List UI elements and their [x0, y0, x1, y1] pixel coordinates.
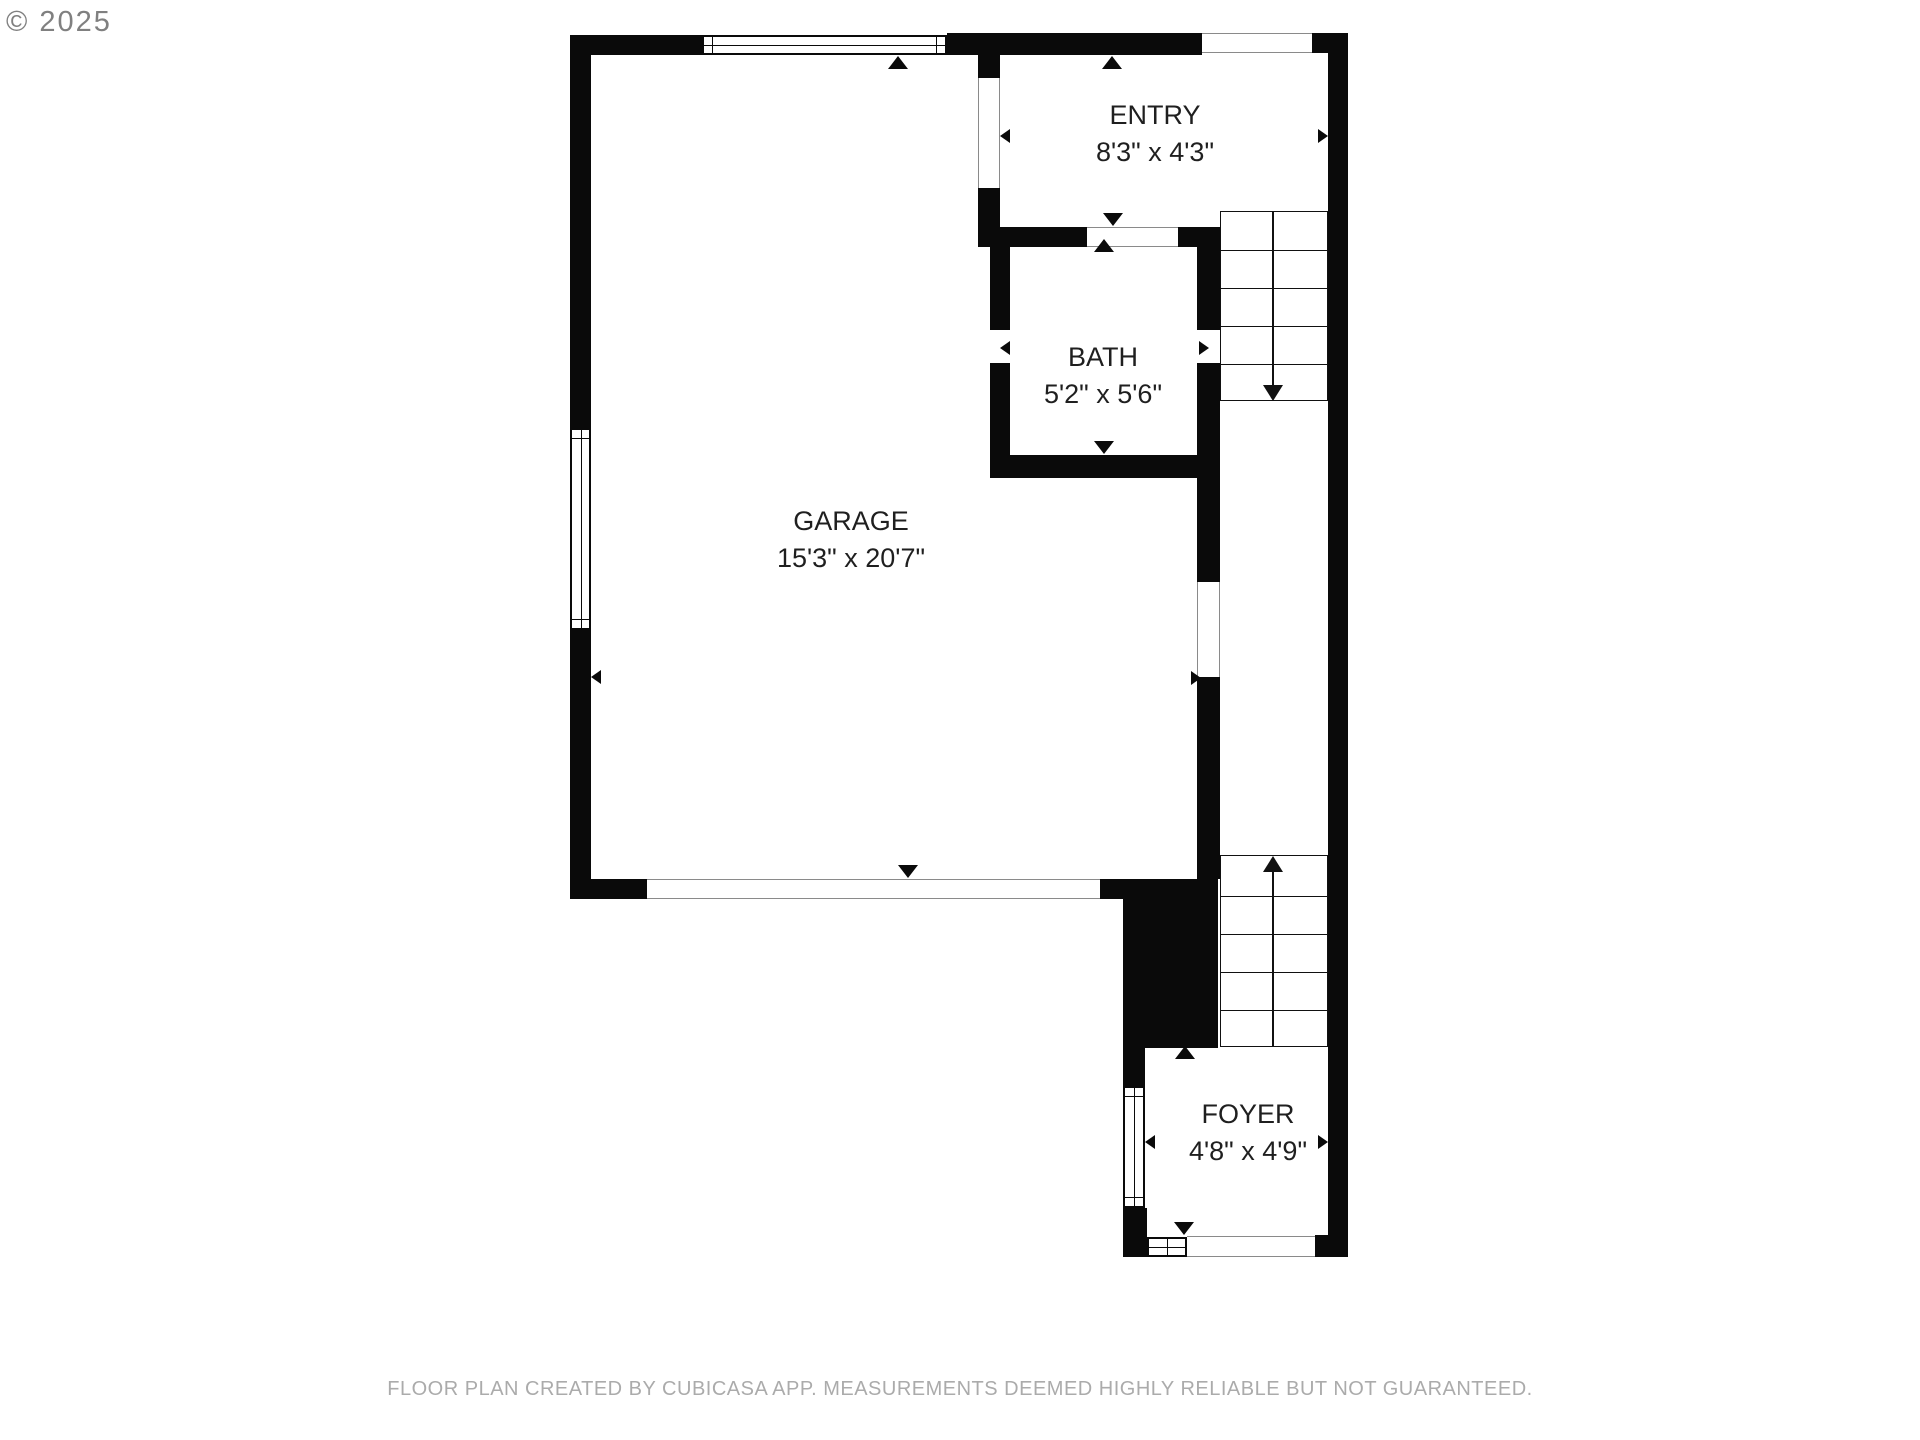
- room-dimensions: 8'3" x 4'3": [1096, 134, 1214, 171]
- garage-entry-door-opening: [978, 78, 1000, 188]
- stairs-upper-run: [1220, 211, 1328, 401]
- window-frame-line: [1167, 1239, 1168, 1255]
- stair-tread-line: [1221, 896, 1327, 897]
- entry-door-marker-up-icon: [1102, 56, 1122, 69]
- foyer-bottom-window: [1147, 1237, 1187, 1257]
- wall-garage-bottom-right: [1100, 879, 1218, 899]
- room-label-entry: ENTRY 8'3" x 4'3": [1096, 97, 1214, 171]
- wall-foyer-left-bottom: [1123, 1208, 1147, 1257]
- wall-foyer-left-top: [1123, 1048, 1145, 1086]
- garage-window-marker-up-icon: [888, 56, 908, 69]
- room-label-bath: BATH 5'2" x 5'6": [1044, 339, 1162, 413]
- garage-left-window: [570, 428, 591, 630]
- wall-left-lower: [570, 630, 591, 899]
- room-label-garage: GARAGE 15'3" x 20'7": [777, 503, 925, 577]
- garage-top-window: [702, 35, 947, 55]
- wall-below-bath: [1197, 478, 1220, 582]
- wall-entry-bottom-left: [990, 227, 1087, 247]
- bath-bottom-marker-icon: [1094, 441, 1114, 454]
- stairs-down-arrow-icon: [1263, 385, 1283, 401]
- stairs-lower-run: [1220, 855, 1328, 1047]
- foyer-left-window: [1123, 1086, 1145, 1208]
- foyer-top-marker-icon: [1175, 1046, 1195, 1059]
- bath-right-marker-icon: [1199, 341, 1209, 355]
- wall-top-right-corner: [1312, 33, 1348, 53]
- window-frame-line: [1125, 1197, 1143, 1198]
- wall-foyer-bottom-right-corner: [1315, 1235, 1348, 1257]
- floor-plan: © 2025: [0, 0, 1920, 1440]
- garage-door-opening: [647, 879, 1100, 899]
- bath-left-marker-icon: [1000, 341, 1010, 355]
- entry-left-marker-icon: [1000, 129, 1010, 143]
- room-name: GARAGE: [777, 503, 925, 540]
- room-name: FOYER: [1189, 1096, 1307, 1133]
- bath-top-marker-icon: [1094, 239, 1114, 252]
- foyer-left-marker-icon: [1145, 1135, 1155, 1149]
- stairs-up-arrow-icon: [1263, 856, 1283, 872]
- window-frame-line: [572, 619, 589, 620]
- wall-bath-bottom: [990, 455, 1220, 478]
- window-frame-line: [572, 438, 589, 439]
- stair-tread-line: [1221, 934, 1327, 935]
- foyer-bottom-marker-icon: [1174, 1222, 1194, 1235]
- wall-garage-bottom-left: [591, 879, 647, 899]
- stair-tread-line: [1221, 364, 1327, 365]
- wall-right: [1328, 53, 1348, 1257]
- room-dimensions: 15'3" x 20'7": [777, 540, 925, 577]
- window-pane-line: [581, 430, 582, 628]
- copyright-watermark: © 2025: [6, 6, 112, 39]
- garage-bottom-marker-icon: [898, 865, 918, 878]
- window-frame-line: [936, 37, 937, 53]
- room-dimensions: 4'8" x 4'9": [1189, 1133, 1307, 1170]
- stairs-up-direction-line: [1272, 871, 1274, 1047]
- entry-right-marker-icon: [1318, 129, 1328, 143]
- garage-hall-opening: [1197, 582, 1220, 677]
- garage-right-marker-icon: [1191, 671, 1201, 685]
- room-name: ENTRY: [1096, 97, 1214, 134]
- stair-tread-line: [1221, 326, 1327, 327]
- wall-top-left: [570, 35, 702, 55]
- wall-top-mid: [947, 33, 1202, 55]
- room-name: BATH: [1044, 339, 1162, 376]
- stair-tread-line: [1221, 1010, 1327, 1011]
- stairs-down-direction-line: [1272, 211, 1274, 386]
- wall-mass-garage-foyer: [1123, 899, 1218, 1048]
- foyer-right-marker-icon: [1318, 1135, 1328, 1149]
- garage-left-marker-icon: [591, 670, 601, 684]
- wall-left-upper: [570, 35, 591, 428]
- entry-bottom-marker-icon: [1103, 213, 1123, 226]
- room-label-foyer: FOYER 4'8" x 4'9": [1189, 1096, 1307, 1170]
- wall-entry-bottom-right: [1178, 227, 1220, 247]
- disclaimer-text: FLOOR PLAN CREATED BY CUBICASA APP. MEAS…: [0, 1378, 1920, 1401]
- window-frame-line: [712, 37, 713, 53]
- foyer-bottom-opening: [1187, 1236, 1315, 1257]
- wall-hall-left: [1197, 677, 1220, 879]
- window-frame-line: [1125, 1096, 1143, 1097]
- stair-tread-line: [1221, 972, 1327, 973]
- window-pane-line: [1134, 1088, 1135, 1206]
- front-door-opening: [1202, 33, 1312, 53]
- wall-entry-left-stub: [978, 55, 1000, 78]
- stair-tread-line: [1221, 250, 1327, 251]
- window-pane-line: [704, 45, 945, 46]
- stair-tread-line: [1221, 288, 1327, 289]
- room-dimensions: 5'2" x 5'6": [1044, 376, 1162, 413]
